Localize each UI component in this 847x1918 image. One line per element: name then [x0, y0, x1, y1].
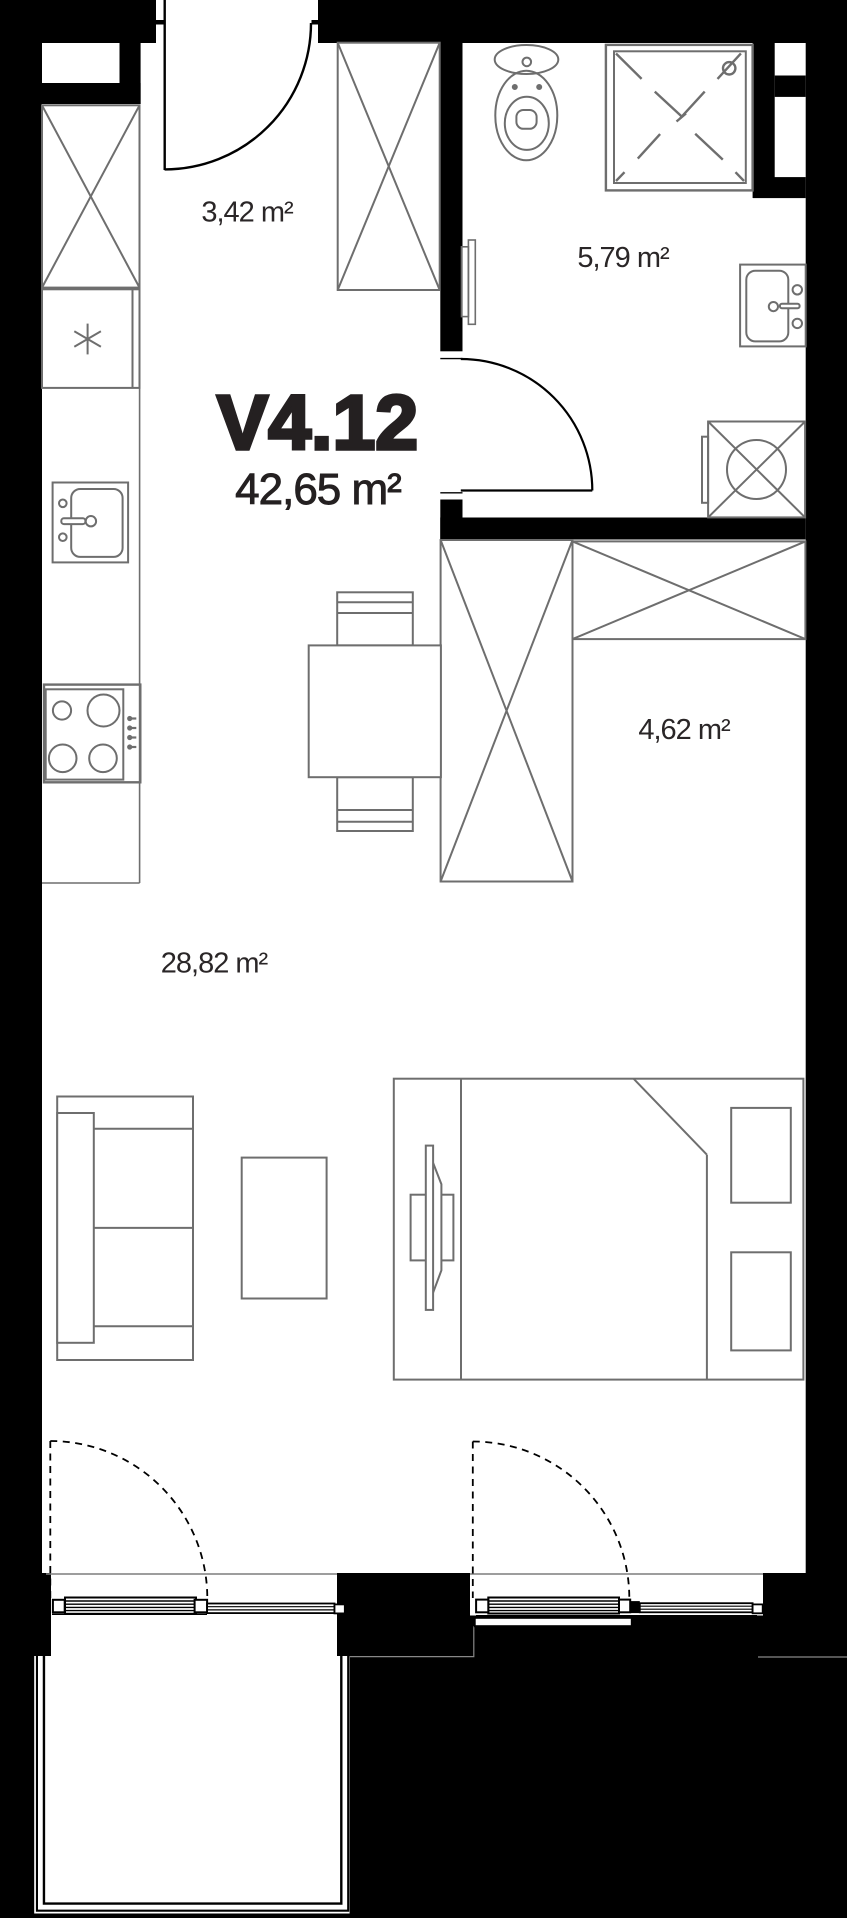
svg-text:3,42 m²: 3,42 m²: [201, 197, 294, 229]
svg-text:4,62 m²: 4,62 m²: [638, 714, 731, 746]
svg-text:42,65 m²: 42,65 m²: [235, 465, 401, 514]
svg-text:V4.12: V4.12: [217, 380, 418, 466]
svg-text:28,82 m²: 28,82 m²: [161, 948, 269, 980]
svg-text:5,79 m²: 5,79 m²: [577, 242, 670, 274]
